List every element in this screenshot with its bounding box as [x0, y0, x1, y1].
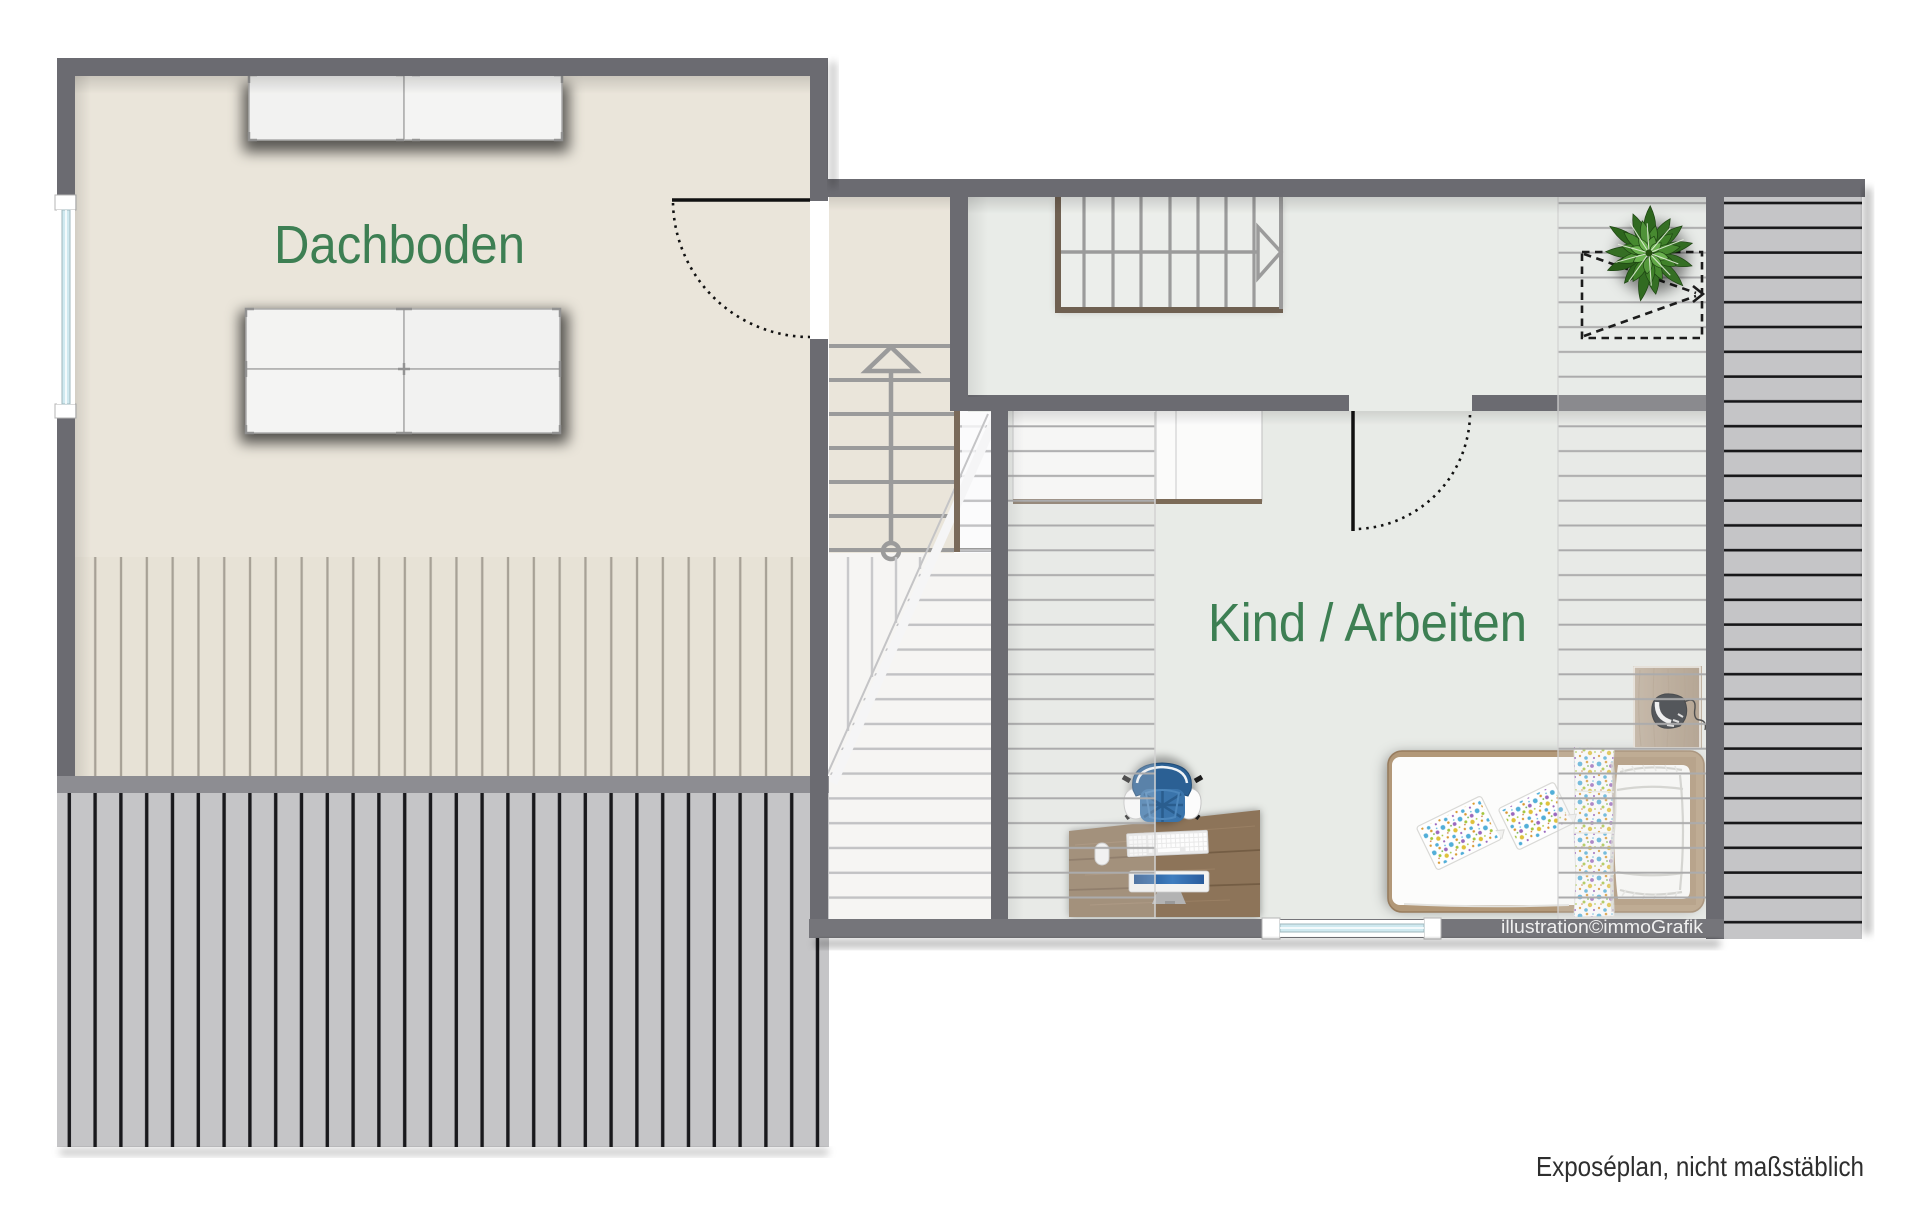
svg-text:Kind / Arbeiten: Kind / Arbeiten [1208, 593, 1527, 653]
svg-text:illustration©immoGrafik: illustration©immoGrafik [1501, 916, 1704, 937]
svg-text:Exposéplan, nicht maßstäblich: Exposéplan, nicht maßstäblich [1536, 1151, 1864, 1182]
svg-text:Dachboden: Dachboden [274, 215, 525, 275]
